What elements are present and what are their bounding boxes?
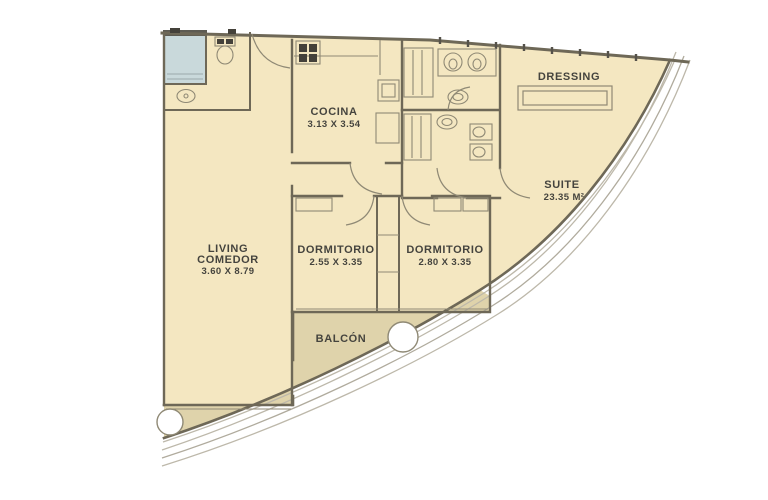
column [157, 409, 183, 435]
suite-area: 23.35 M² [544, 192, 585, 203]
toilet-tank-detail [226, 39, 233, 44]
dormitorio1-label: DORMITORIO [297, 244, 374, 256]
living-label2: COMEDOR [197, 254, 259, 266]
column [388, 322, 418, 352]
cocina-label: COCINA [311, 106, 358, 118]
balcon-label: BALCÓN [316, 332, 367, 345]
floor-plan-page: LIVING COMEDOR 3.60 X 8.79 COCINA 3.13 X… [0, 0, 768, 500]
floor-plan-canvas: LIVING COMEDOR 3.60 X 8.79 COCINA 3.13 X… [0, 0, 768, 500]
wall-hatch-2 [228, 29, 236, 34]
dormitorio2-label: DORMITORIO [406, 244, 483, 256]
elevator-shaft [163, 30, 207, 84]
toilet-tank-detail [217, 39, 224, 44]
dormitorio2-dims: 2.80 X 3.35 [419, 257, 472, 268]
apartment-floor [164, 33, 670, 438]
dressing-label: DRESSING [538, 71, 600, 83]
living-dims: 3.60 X 8.79 [202, 266, 255, 277]
suite-label: SUITE [544, 179, 579, 191]
dormitorio1-dims: 2.55 X 3.35 [310, 257, 363, 268]
cocina-dims: 3.13 X 3.54 [308, 119, 361, 130]
wall-hatch-1 [170, 28, 180, 33]
